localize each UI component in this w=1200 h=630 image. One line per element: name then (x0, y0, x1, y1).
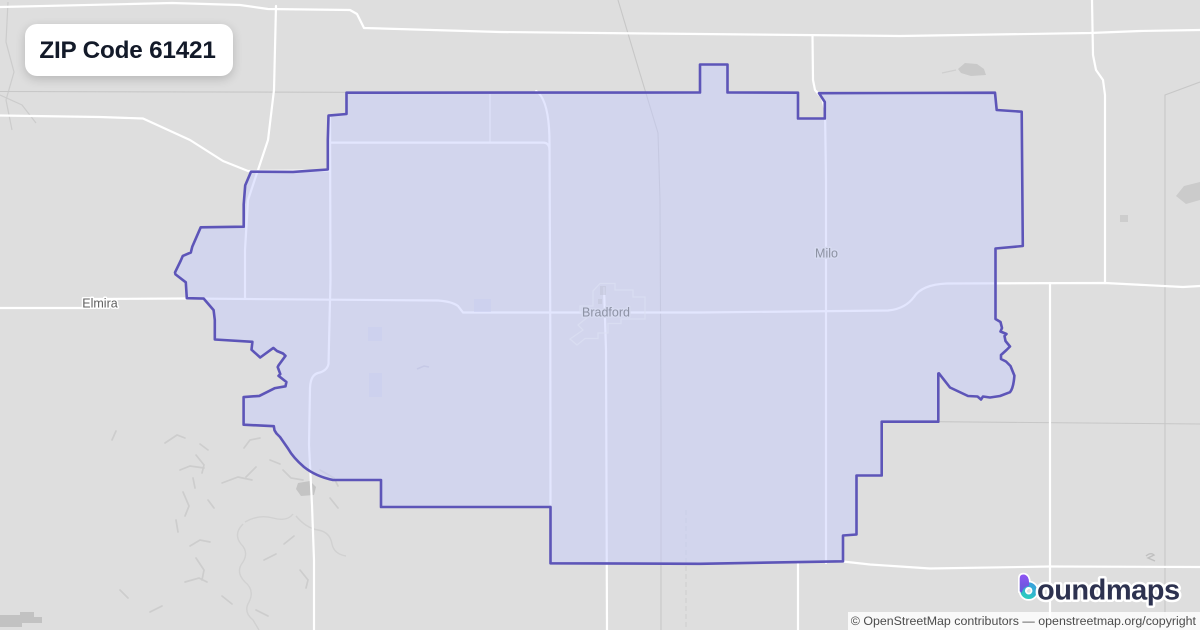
svg-text:Milo: Milo (815, 247, 838, 261)
svg-text:oundmaps: oundmaps (1037, 575, 1180, 607)
svg-text:Elmira: Elmira (82, 297, 117, 311)
svg-text:Bradford: Bradford (582, 306, 630, 320)
